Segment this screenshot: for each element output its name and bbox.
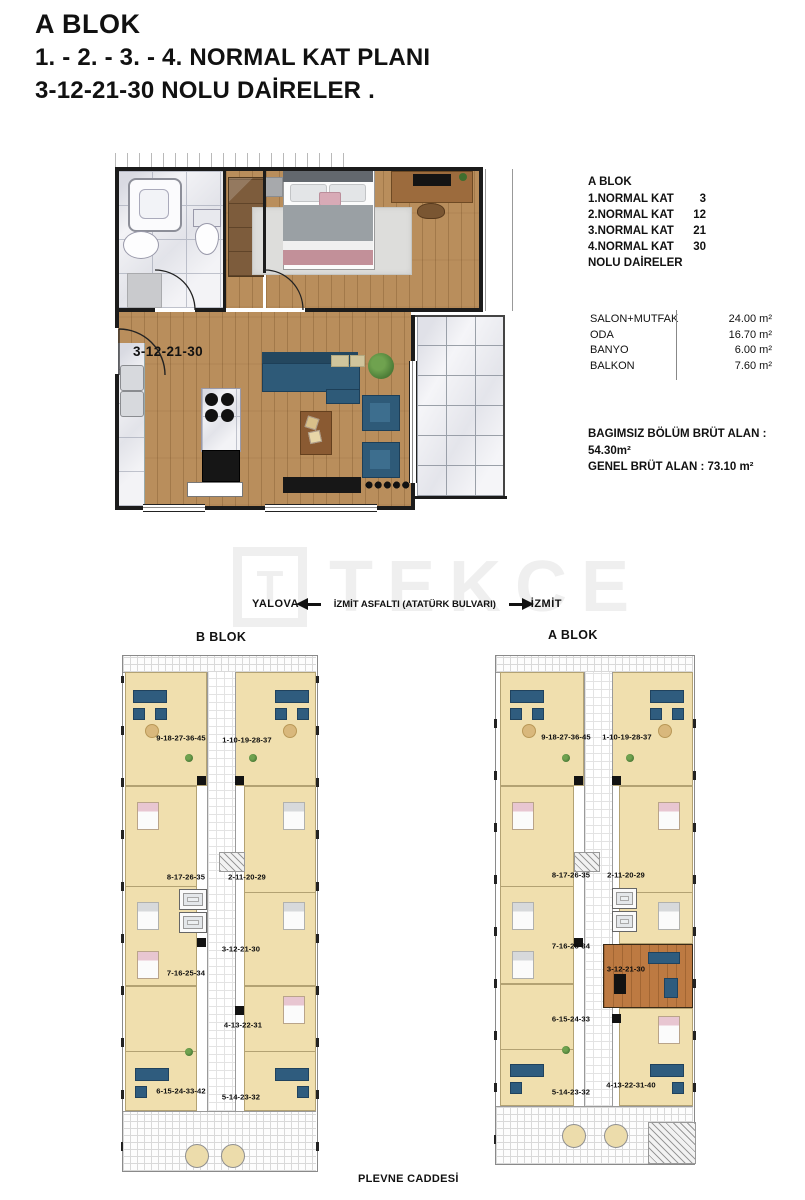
title-apartments: 3-12-21-30 NOLU DAİRELER . [35,74,430,107]
plant-hint [185,1048,193,1056]
furniture-hint [137,951,159,979]
bathroom-sink [123,231,159,259]
unit-divider [244,1051,316,1052]
apartment-label: 2-11-20-29 [228,873,266,882]
bedroom-door-arc [265,270,303,310]
terrace-table [221,1144,245,1168]
furniture-hint [275,1068,309,1081]
furniture-hint [137,902,159,930]
furniture-hint [510,1064,544,1077]
room-name: BALKON [590,359,674,375]
balcony-edge-right [503,315,505,498]
arrow-left-icon [305,603,321,606]
furniture-hint [614,974,626,994]
terrace-table [562,1124,586,1148]
furniture-hint [650,1064,684,1077]
info-block-title: A BLOK [588,176,798,188]
unit-area [244,786,316,986]
furniture-hint [283,724,297,738]
sofa-pillow-1 [331,355,349,367]
floor-label: 1.NORMAL KAT [588,191,680,207]
plant-hint [249,754,257,762]
wall-mid-3 [305,308,483,312]
floor-row-1: 1.NORMAL KAT3 [588,191,798,207]
bed-sheet-fold [283,241,373,250]
gross-line-1: BAGIMSIZ BÖLÜM BRÜT ALAN : 54.30m² [588,426,803,459]
balcony-floor [417,317,503,496]
window-dashes-left [494,676,497,1144]
shaft-mark [197,776,206,785]
apartment-label: 9-18-27-36-45 [156,734,205,743]
apartment-label: 4-13-22-31 [224,1021,262,1030]
terrace-bottom [123,1111,316,1171]
watermark-logo: T [233,547,307,627]
room-area: 6.00 m² [674,343,772,359]
bathroom-door-arc [155,270,195,310]
a-block-plan: 9-18-27-36-45 1-10-19-28-37 8-17-26-35 2… [495,655,695,1165]
furniture-hint [283,902,305,930]
balcony-edge-bottom [415,496,507,499]
desk-plant [459,173,467,181]
unit-floor-plan: 3-12-21-30 [115,153,511,512]
plant-hint [562,754,570,762]
furniture-hint [137,802,159,830]
wall-right-bedroom [479,167,483,311]
elevator-2 [179,912,207,933]
room-area: 7.60 m² [674,359,772,375]
apartment-label: 5-14-23-32 [552,1088,590,1097]
wall-mid-2 [195,308,226,312]
furniture-hint [664,978,678,998]
apartment-label: 9-18-27-36-45 [541,733,590,742]
sofa [262,363,360,392]
furniture-hint [512,802,534,830]
shaft-mark [574,776,583,785]
wall-left-upper [115,167,119,328]
burner-2 [221,393,234,406]
burner-4 [221,409,234,422]
floor-label: 3.NORMAL KAT [588,223,680,239]
apartment-label: 3-12-21-30 [607,965,645,974]
window-living-2 [265,504,377,512]
stairs [574,852,600,872]
shaft-mark [235,776,244,785]
furniture-hint [297,708,309,720]
window-balcony-door [409,361,417,483]
info-panel: A BLOK 1.NORMAL KAT3 2.NORMAL KAT12 3.NO… [588,176,798,272]
furniture-hint [510,1082,522,1094]
plant-hint [562,1046,570,1054]
oven [202,450,240,482]
window-dashes-left [121,676,124,1151]
furniture-hint [133,708,145,720]
terrace-top [123,656,316,673]
tv-bench [283,477,361,493]
b-block-title: B BLOK [196,630,246,644]
a-block-title: A BLOK [548,628,598,642]
burner-1 [205,393,218,406]
desk-chair [417,203,445,219]
wall-mid-1 [115,308,155,312]
floor-row-4: 4.NORMAL KAT30 [588,239,798,255]
wall-left-lower [115,374,119,510]
kitchen-cabinet [187,482,243,497]
apartment-label: 6-15-24-33-42 [156,1087,205,1096]
floor-row-3: 3.NORMAL KAT21 [588,223,798,239]
room-row: ODA16.70 m² [590,328,790,344]
road-name: İZMİT ASFALTI (ATATÜRK BULVARI) [334,599,496,610]
apartment-label: 1-10-19-28-37 [602,733,651,742]
wall-hall-bedroom [263,167,266,273]
window-dashes-right [316,676,319,1151]
plant-hint [185,754,193,762]
window-dashes-right [693,676,696,1144]
furniture-hint [650,690,684,703]
floor-value: 12 [680,207,706,223]
accent-pillow [319,192,341,206]
furniture-hint [658,724,672,738]
nightstand [265,177,283,197]
apartment-label: 8-17-26-35 [167,873,205,882]
plant-hint [626,754,634,762]
sofa-chaise [326,389,360,404]
window-living-1 [143,504,205,512]
furniture-hint [275,690,309,703]
room-area: 24.00 m² [674,312,772,328]
apartment-label: 2-11-20-29 [607,871,645,880]
exterior-corridor [115,153,345,168]
shaft-mark [235,1006,244,1015]
furniture-hint [133,690,167,703]
sofa-pillow-2 [350,355,365,367]
shaft-mark [197,938,206,947]
unit-divider [125,886,197,887]
apartment-label: 5-14-23-32 [222,1093,260,1102]
room-name: BANYO [590,343,674,359]
terrace-table [185,1144,209,1168]
entry-door-arc [119,329,165,375]
page: A BLOK 1. - 2. - 3. - 4. NORMAL KAT PLAN… [0,0,805,1200]
kitchen-sink-bowl2 [120,391,144,417]
apartment-label: 1-10-19-28-37 [222,736,271,745]
apartment-label: 7-16-25-34 [552,942,590,951]
furniture-hint [658,1016,680,1044]
elevator-1 [179,889,207,910]
apartment-label: 4-13-22-31-40 [606,1081,655,1090]
shaft-mark [612,1014,621,1023]
furniture-hint [672,708,684,720]
shower-drain [139,189,169,219]
burner-3 [205,409,218,422]
furniture-hint [283,996,305,1024]
room-row: BANYO6.00 m² [590,343,790,359]
floor-value: 30 [680,239,706,255]
exterior-window-strip [485,169,513,311]
room-name: ODA [590,328,674,344]
title-floor-plan: 1. - 2. - 3. - 4. NORMAL KAT PLANI [35,41,430,74]
floor-label: 2.NORMAL KAT [588,207,680,223]
shaft-mark [612,776,621,785]
floor-value: 21 [680,223,706,239]
road-city-left: YALOVA [252,598,299,610]
table-divider [676,310,677,380]
title-block-name: A BLOK [35,8,430,41]
floor-value: 3 [680,191,706,207]
furniture-hint [275,708,287,720]
arrow-right-icon [509,603,525,606]
stairs [219,852,245,872]
page-title-block: A BLOK 1. - 2. - 3. - 4. NORMAL KAT PLAN… [35,8,430,107]
furniture-hint [532,708,544,720]
terrace-table [604,1124,628,1148]
furniture-hint [648,952,680,964]
wall-top [115,167,483,171]
b-block-plan: 9-18-27-36-45 1-10-19-28-37 8-17-26-35 2… [122,655,318,1172]
exterior-stairs [648,1122,696,1164]
room-area: 16.70 m² [674,328,772,344]
furniture-hint [512,902,534,930]
furniture-hint [658,902,680,930]
tv-bench-knobs [364,480,410,490]
plant [368,353,394,379]
watermark: T TEKCE [233,547,643,627]
room-row: SALON+MUTFAK24.00 m² [590,312,790,328]
gross-area-block: BAGIMSIZ BÖLÜM BRÜT ALAN : 54.30m² GENEL… [588,426,803,476]
furniture-hint [297,1086,309,1098]
elevator-1 [612,888,637,909]
armchair-1-seat [370,403,390,422]
road-city-right: İZMİT [531,598,562,610]
apartment-label: 7-16-25-34 [167,969,205,978]
unit-divider [244,892,316,893]
furniture-hint [510,690,544,703]
furniture-hint [658,802,680,830]
floor-row-2: 2.NORMAL KAT12 [588,207,798,223]
furniture-hint [283,802,305,830]
apartment-label: 3-12-21-30 [222,945,260,954]
furniture-hint [650,708,662,720]
unit-divider [500,886,574,887]
gross-line-2: GENEL BRÜT ALAN : 73.10 m² [588,459,803,476]
terrace-top [496,656,693,673]
elevator-2 [612,911,637,932]
armchair-2-seat [370,450,390,469]
apartment-label: 8-17-26-35 [552,871,590,880]
furniture-hint [672,1082,684,1094]
room-row: BALKON7.60 m² [590,359,790,375]
coffee-table-book2 [308,430,322,444]
nolu-daireler-label: NOLU DAİRELER [588,255,798,272]
apartment-label: 6-15-24-33 [552,1015,590,1024]
wall-bathroom-hall [223,167,226,308]
room-name: SALON+MUTFAK [590,312,674,328]
bed-blanket [283,250,373,265]
furniture-hint [522,724,536,738]
desk-monitor [413,174,451,186]
room-area-table: SALON+MUTFAK24.00 m² ODA16.70 m² BANYO6.… [590,312,790,374]
furniture-hint [510,708,522,720]
floor-label: 4.NORMAL KAT [588,239,680,255]
balcony-edge-top [415,315,505,317]
furniture-hint [155,708,167,720]
furniture-hint [135,1068,169,1081]
street-label: PLEVNE CADDESİ [358,1173,459,1185]
road-row: YALOVA İZMİT ASFALTI (ATATÜRK BULVARI) İ… [252,598,562,610]
bed-duvet [283,205,373,241]
furniture-hint [512,951,534,979]
furniture-hint [135,1086,147,1098]
